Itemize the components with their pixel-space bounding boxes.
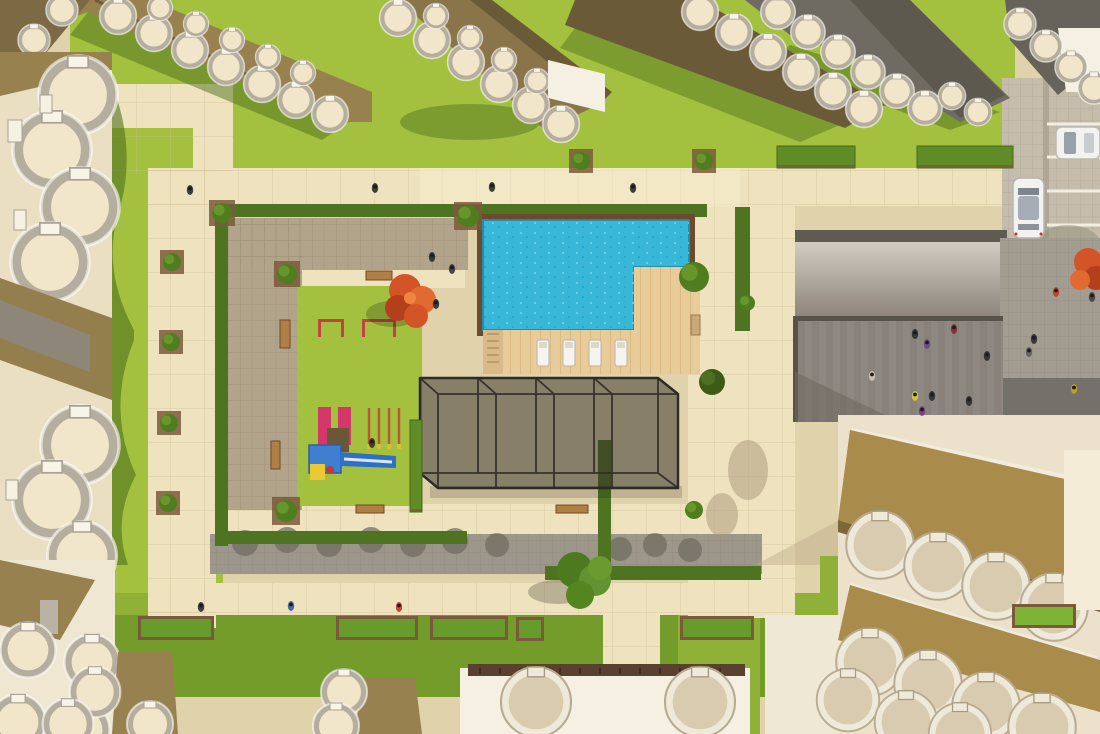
hedge-west [215,204,228,546]
hedge-south-west [215,531,467,544]
bush [274,261,300,287]
scene-svg [0,0,1100,734]
pedestrian [198,602,204,612]
pedestrian [951,324,957,334]
bush [159,330,183,354]
bench [280,320,290,348]
pedestrian [187,185,193,195]
pedestrian [966,396,972,406]
bench [366,271,392,280]
planter-box [336,616,418,640]
pedestrian [1089,292,1095,302]
sun-lounger [537,340,549,366]
swimming-pool-area [477,214,700,374]
building-bottom-2 [313,669,422,734]
pedestrian [288,601,294,611]
planter-box [430,616,508,640]
planter-box [138,616,214,640]
bush [739,295,755,311]
pedestrian [429,252,435,262]
bush [699,369,725,395]
bench [356,505,384,513]
pedestrian [1031,334,1037,344]
bush [209,200,235,226]
car-vertical [1013,178,1044,238]
white-wall-strip [1064,450,1100,610]
hedgerow [410,420,422,512]
hedge-east [735,207,750,331]
pedestrian [489,182,495,192]
pedestrian [396,602,402,612]
bush [157,411,181,435]
ramp [795,242,1007,320]
building-bottom-white [460,664,750,734]
pedestrian [869,371,875,381]
striped-plaza [793,316,1003,422]
pedestrian [369,438,375,448]
pedestrian [919,406,925,416]
ramp-edge [795,230,1007,242]
pedestrian [1053,287,1059,297]
cobble-plaza-dark [1003,378,1100,418]
pedestrian [984,351,990,361]
sun-lounger [615,340,627,366]
pedestrian [372,183,378,193]
pedestrian [929,391,935,401]
bush [679,262,709,292]
planter-box [1012,604,1076,628]
bush [156,491,180,515]
building-left [0,52,119,591]
bush [569,149,593,173]
bench [556,505,588,513]
bench [271,441,280,469]
aerial-render-canvas [0,0,1100,734]
pedestrian [1071,384,1077,394]
hedgerow [777,146,855,168]
pedestrian [1026,347,1032,357]
bush [685,501,703,519]
pedestrian [449,264,455,274]
bush [692,149,716,173]
hedgerow [917,146,1013,168]
pool-steps [483,330,503,374]
bush [454,202,482,230]
pedestrian [630,183,636,193]
pedestrian [912,391,918,401]
pedestrian [433,299,439,309]
path-sunlit-patch [420,168,740,206]
sun-lounger [563,340,575,366]
car-horizontal [1056,127,1100,159]
pedestrian [912,329,918,339]
bush [272,497,300,525]
bush [160,250,184,274]
glass-pavilion [420,378,682,498]
planter-box [680,616,754,640]
sun-lounger [589,340,601,366]
pedestrian [924,339,930,349]
planter-box [516,617,544,641]
deck-table [691,315,700,335]
